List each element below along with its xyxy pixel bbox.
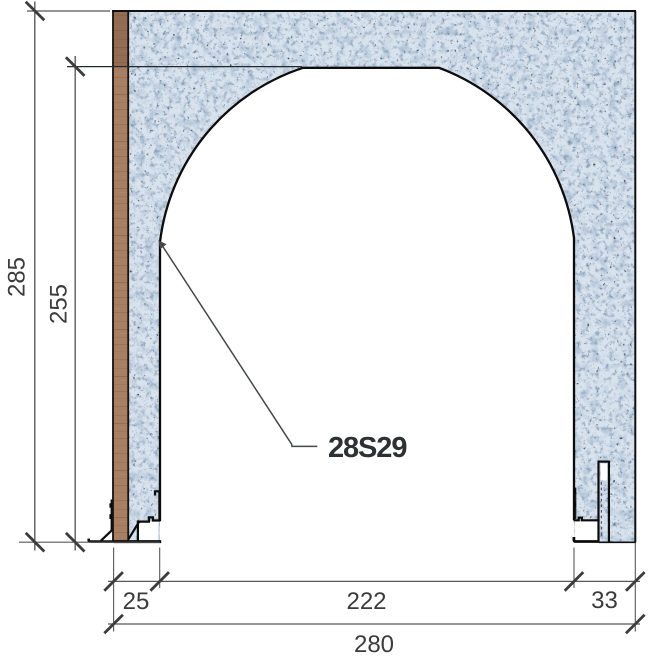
svg-text:33: 33: [591, 587, 618, 614]
svg-text:280: 280: [354, 631, 394, 658]
svg-text:285: 285: [3, 257, 30, 297]
svg-text:25: 25: [123, 588, 150, 615]
svg-text:255: 255: [45, 284, 72, 324]
svg-text:222: 222: [346, 588, 386, 615]
svg-text:28S29: 28S29: [328, 432, 407, 464]
